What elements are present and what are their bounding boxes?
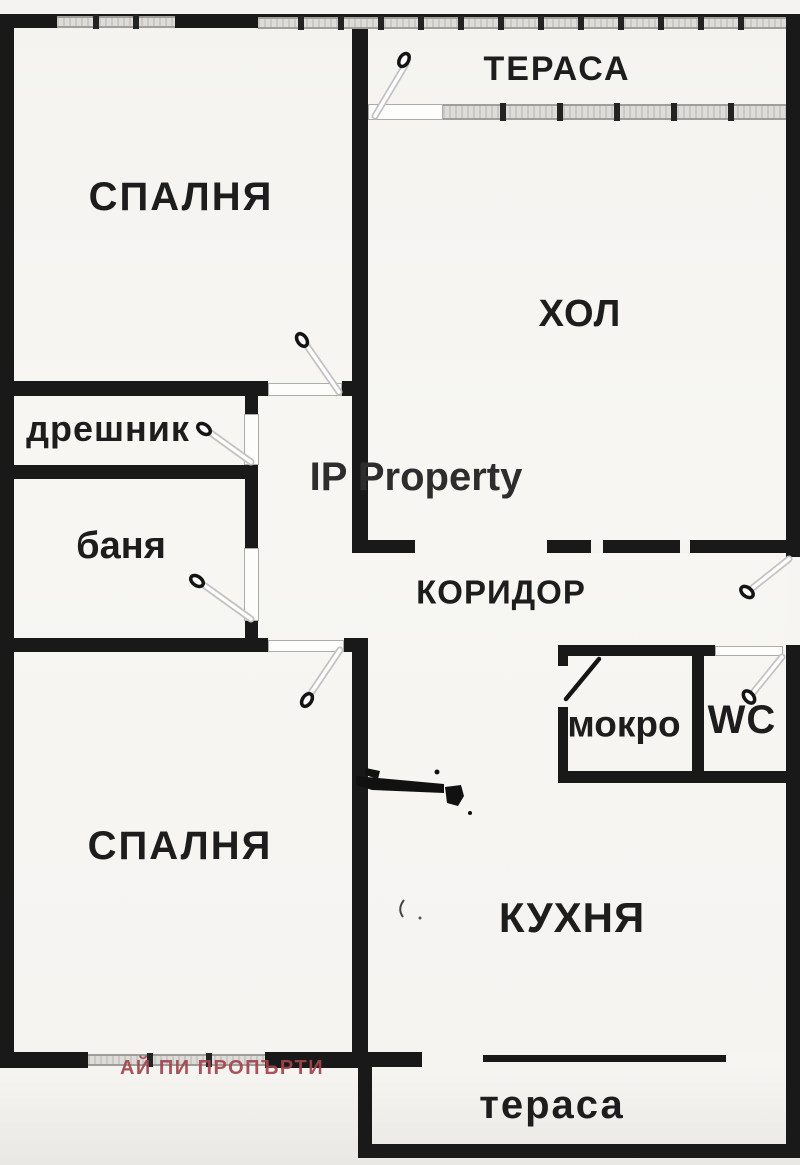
room-label-corridor: КОРИДОР [416,576,586,609]
room-label-terrace-bottom: тераса [479,1085,625,1125]
room-label-closet: дрешник [26,411,190,447]
scan-smudges [356,768,472,920]
door-entrance-swing [739,559,789,600]
door-utility-swing [566,659,599,699]
room-label-wc: WC [708,700,777,740]
watermark-ip-property: IP Property [310,457,523,497]
door-closet-swing [196,421,251,462]
room-label-living-room: ХОЛ [539,295,622,333]
room-label-kitchen: КУХНЯ [499,897,645,939]
room-label-terrace-top: ТЕРАСА [483,52,630,86]
door-terrace-swing [375,52,411,116]
floor-plan: ТЕРАСА СПАЛНЯ ХОЛ дрешник баня IP Proper… [0,0,800,1165]
door-bedroom1-swing [294,332,339,392]
room-label-utility: мокро [567,706,680,743]
room-label-bedroom-bottom: СПАЛНЯ [88,826,273,866]
room-label-bathroom: баня [76,527,166,565]
room-label-bedroom-top: СПАЛНЯ [89,177,274,217]
door-bathroom-swing [189,573,251,619]
door-bedroom2-swing [299,650,340,708]
watermark-agency: АЙ ПИ ПРОПЪРТИ [120,1058,324,1078]
